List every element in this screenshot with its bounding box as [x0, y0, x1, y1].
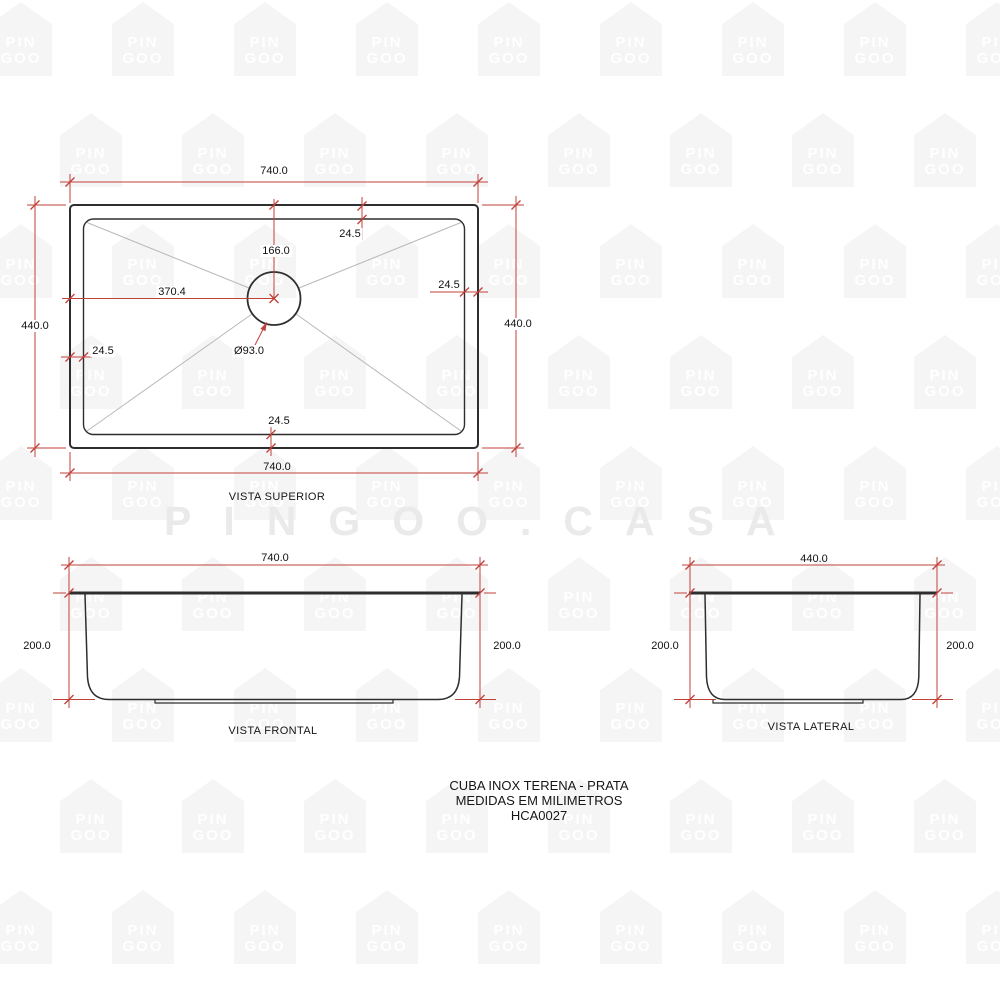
dim-right-height: 440.0	[502, 318, 534, 330]
product-code: HCA0027	[449, 808, 628, 823]
side-view-title: VISTA LATERAL	[768, 721, 855, 733]
dim-flange-top: 24.5	[337, 228, 362, 240]
dim-front-height-left: 200.0	[23, 640, 51, 652]
dim-side-width: 440.0	[800, 553, 828, 565]
drawing-sheet: PINGOOPINGOOPINGOOPINGOOPINGOOPINGOOPING…	[0, 0, 1000, 1000]
units-note: MEDIDAS EM MILIMETROS	[449, 793, 628, 808]
dim-flange-bottom: 24.5	[266, 415, 291, 427]
dimension-labels: 740.0 740.0 440.0 440.0 166.0 370.4 24.5…	[0, 0, 1000, 1000]
front-view-title: VISTA FRONTAL	[228, 725, 317, 737]
dim-front-height-right: 200.0	[493, 640, 521, 652]
dim-top-width: 740.0	[260, 165, 288, 177]
title-block: CUBA INOX TERENA - PRATA MEDIDAS EM MILI…	[449, 778, 628, 823]
top-view-title: VISTA SUPERIOR	[229, 491, 325, 503]
dim-drain-diameter: Ø93.0	[232, 345, 266, 357]
dim-center-from-left: 370.4	[156, 286, 188, 298]
product-name: CUBA INOX TERENA - PRATA	[449, 778, 628, 793]
dim-flange-right: 24.5	[436, 279, 461, 291]
dim-side-height-right: 200.0	[946, 640, 974, 652]
dim-flange-left: 24.5	[90, 345, 115, 357]
dim-front-width: 740.0	[261, 552, 289, 564]
dim-center-from-top: 166.0	[260, 245, 292, 257]
dim-bottom-width: 740.0	[263, 461, 291, 473]
dim-left-height: 440.0	[19, 320, 51, 332]
dim-side-height-left: 200.0	[651, 640, 679, 652]
